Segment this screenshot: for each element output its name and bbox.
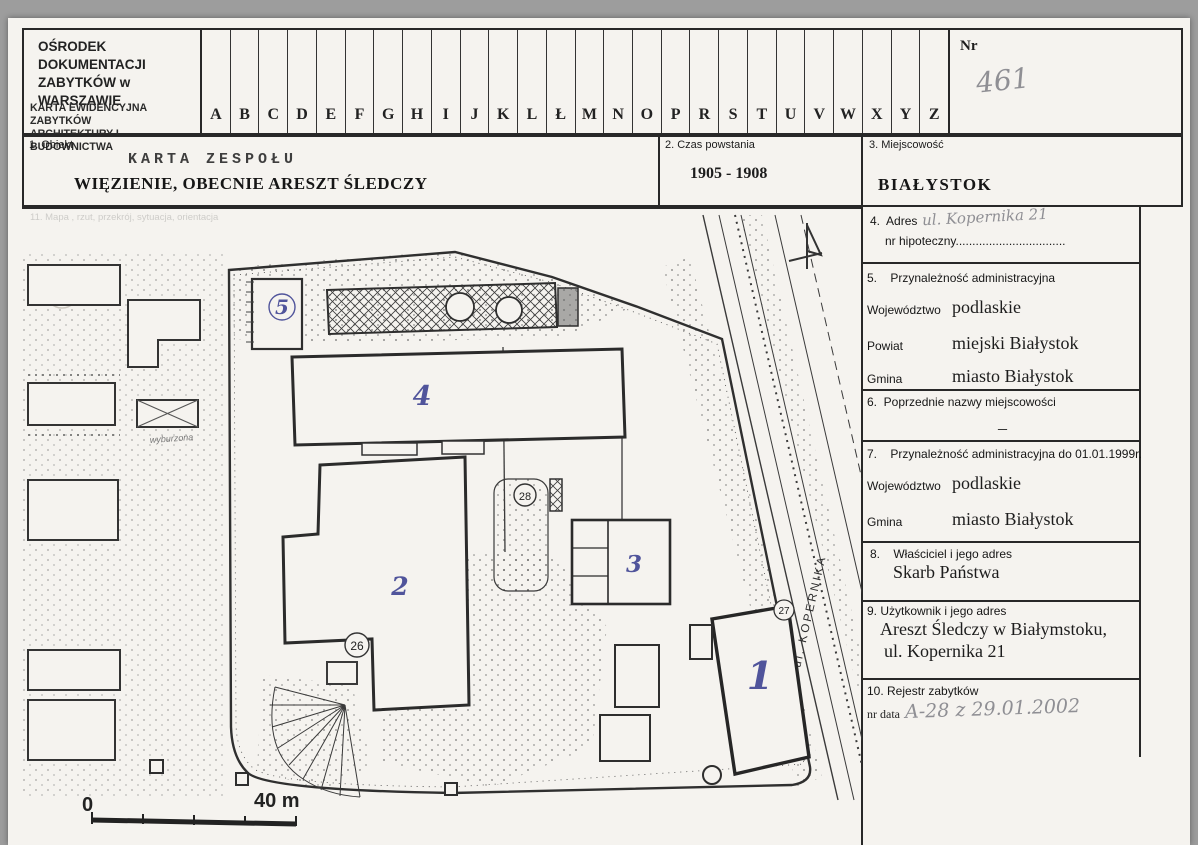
letter-cell-U: U <box>777 30 806 133</box>
letter-cell-O: O <box>633 30 662 133</box>
field7-row2-key: Gmina <box>867 515 902 529</box>
letter-cell-H: H <box>403 30 432 133</box>
building-5: 5 <box>246 279 302 349</box>
letter-cell-L: L <box>518 30 547 133</box>
nr-label: Nr <box>960 38 978 55</box>
separator <box>862 678 1140 680</box>
circled-26: 26 <box>345 633 369 657</box>
letter-cell-P: P <box>662 30 691 133</box>
object-name: WIĘZIENIE, OBECNIE ARESZT ŚLEDCZY <box>74 174 427 194</box>
field10-label: 10. Rejestr zabytków <box>867 684 978 698</box>
hatched-building <box>327 283 578 334</box>
letter-cell-Y: Y <box>892 30 921 133</box>
field9-label: 9. Użytkownik i jego adres <box>867 604 1006 618</box>
separator <box>862 262 1140 264</box>
letter-cell-F: F <box>346 30 375 133</box>
field8-label: 8. Właściciel i jego adres <box>870 547 1012 561</box>
karta-zespolu-stamp: KARTA ZESPOŁU <box>128 151 297 168</box>
building-5-label: 5 <box>275 295 289 319</box>
field8-value: Skarb Państwa <box>893 562 1000 583</box>
letter-cell-K: K <box>489 30 518 133</box>
street-name-label: ul. KOPERNIKA <box>791 554 829 669</box>
field10-sublabel: nr data <box>867 707 900 722</box>
letter-cell-Z: Z <box>920 30 948 133</box>
scale-end-label: 40 m <box>254 790 300 812</box>
field4-label: 4. Adres <box>870 214 917 228</box>
letter-cell-I: I <box>432 30 461 133</box>
letter-cell-W: W <box>834 30 863 133</box>
field5-label: 5. Przynależność administracyjna <box>867 271 1055 285</box>
field5-row3-value: miasto Białystok <box>952 366 1074 387</box>
circled-26-label: 26 <box>350 639 364 653</box>
building-3-label: 3 <box>626 551 642 578</box>
separator <box>862 541 1140 543</box>
letter-cell-M: M <box>576 30 605 133</box>
field6-value: – <box>998 418 1007 439</box>
field7-label: 7. Przynależność administracyjna do 01.0… <box>867 447 1142 461</box>
building-2: 2 <box>283 457 469 710</box>
field2-value: 1905 - 1908 <box>690 165 767 183</box>
circled-27-label: 27 <box>778 606 790 617</box>
letter-cell-B: B <box>231 30 260 133</box>
divider <box>658 135 660 207</box>
letter-cell-E: E <box>317 30 346 133</box>
alphabet-index-row: ABCDEFGHIJKLŁMNOPRSTUVWXYZ <box>202 30 948 133</box>
divider <box>861 135 863 207</box>
building-4-label: 4 <box>413 381 432 412</box>
building-3: 3 <box>572 520 670 604</box>
field7-row2-value: miasto Białystok <box>952 509 1074 530</box>
north-arrow-icon <box>789 223 822 269</box>
letter-cell-V: V <box>805 30 834 133</box>
fields-right-border <box>1139 207 1141 757</box>
field5-row1-value: podlaskie <box>952 297 1021 318</box>
separator <box>862 389 1140 391</box>
letter-cell-S: S <box>719 30 748 133</box>
letter-cell-R: R <box>690 30 719 133</box>
field5-row3-key: Gmina <box>867 372 902 386</box>
issuer-box: OŚRODEK DOKUMENTACJI ZABYTKÓW w WARSZAWI… <box>22 28 202 135</box>
building-1: 1 27 <box>690 600 809 774</box>
building-2-label: 2 <box>390 572 408 601</box>
letter-cell-C: C <box>259 30 288 133</box>
field5-row2-key: Powiat <box>867 339 903 353</box>
field9-value-line1: Areszt Śledczy w Białymstoku, <box>880 619 1107 640</box>
field6-label: 6. Poprzednie nazwy miejscowości <box>867 395 1056 409</box>
letter-cell-J: J <box>461 30 490 133</box>
letter-cell-T: T <box>748 30 777 133</box>
field4-sublabel: nr hipoteczny...........................… <box>885 234 1066 248</box>
field1-label: 1. Obiekt <box>29 139 73 151</box>
letter-cell-D: D <box>288 30 317 133</box>
building-1-label: 1 <box>747 653 773 698</box>
field7-row1-value: podlaskie <box>952 473 1021 494</box>
letter-cell-A: A <box>202 30 231 133</box>
letter-cell-G: G <box>374 30 403 133</box>
field3-value: BIAŁYSTOK <box>878 175 992 195</box>
letter-cell-N: N <box>604 30 633 133</box>
letter-cell-Ł: Ł <box>547 30 576 133</box>
nr-handwritten-value: 461 <box>974 61 1031 99</box>
issuer-line1: OŚRODEK DOKUMENTACJI <box>38 38 203 74</box>
building-4: 4 <box>292 349 625 455</box>
site-plan-drawing: ul. KOPERNIKA wyburzona 5 <box>22 207 862 845</box>
field9-value-line2: ul. Kopernika 21 <box>884 641 1005 662</box>
separator <box>862 440 1140 442</box>
nr-box: Nr 461 <box>948 30 1183 133</box>
field5-row1-key: Województwo <box>867 303 941 317</box>
card-type-line1: KARTA EWIDENCYJNA ZABYTKÓW <box>30 102 200 128</box>
separator <box>862 600 1140 602</box>
scale-zero-label: 0 <box>82 794 93 816</box>
field2-label: 2. Czas powstania <box>665 139 755 151</box>
field7-row1-key: Województwo <box>867 479 941 493</box>
field5-row2-value: miejski Białystok <box>952 333 1079 354</box>
object-row <box>22 135 1183 207</box>
circled-28-label: 28 <box>519 491 531 503</box>
letter-cell-X: X <box>863 30 892 133</box>
field3-label: 3. Miejscowość <box>869 139 944 151</box>
